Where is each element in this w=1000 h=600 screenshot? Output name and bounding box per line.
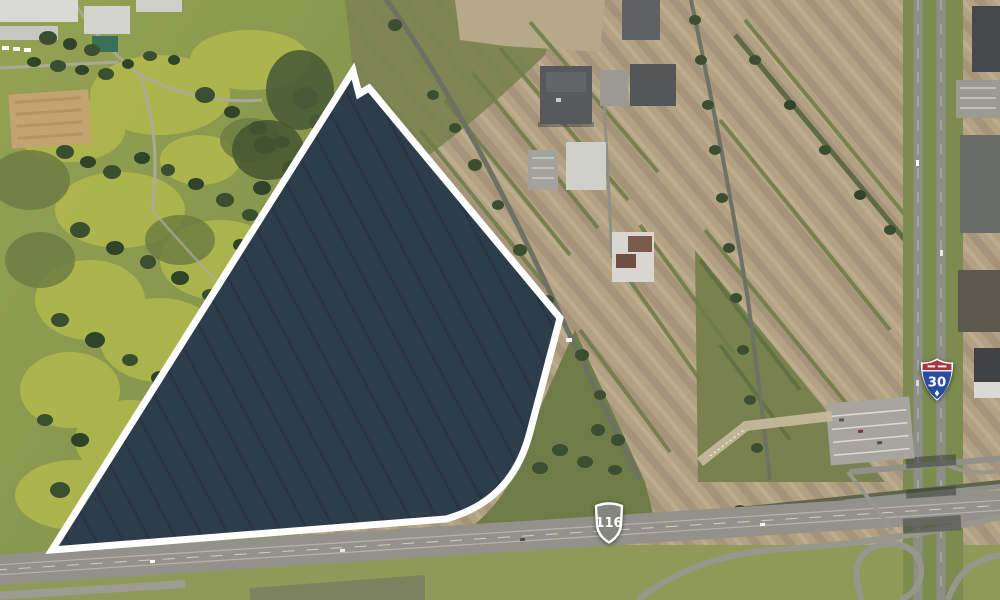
aerial-map-viewport[interactable]: 116 30 [0,0,1000,600]
route-116-shield-icon: 116 [592,500,626,544]
interstate-30-number: 30 [928,376,946,391]
interstate-30-shield-icon: 30 [920,357,954,403]
interstate-shield-red-band [923,360,952,370]
route-116-number: 116 [595,516,622,531]
satellite-imagery [0,0,1000,600]
